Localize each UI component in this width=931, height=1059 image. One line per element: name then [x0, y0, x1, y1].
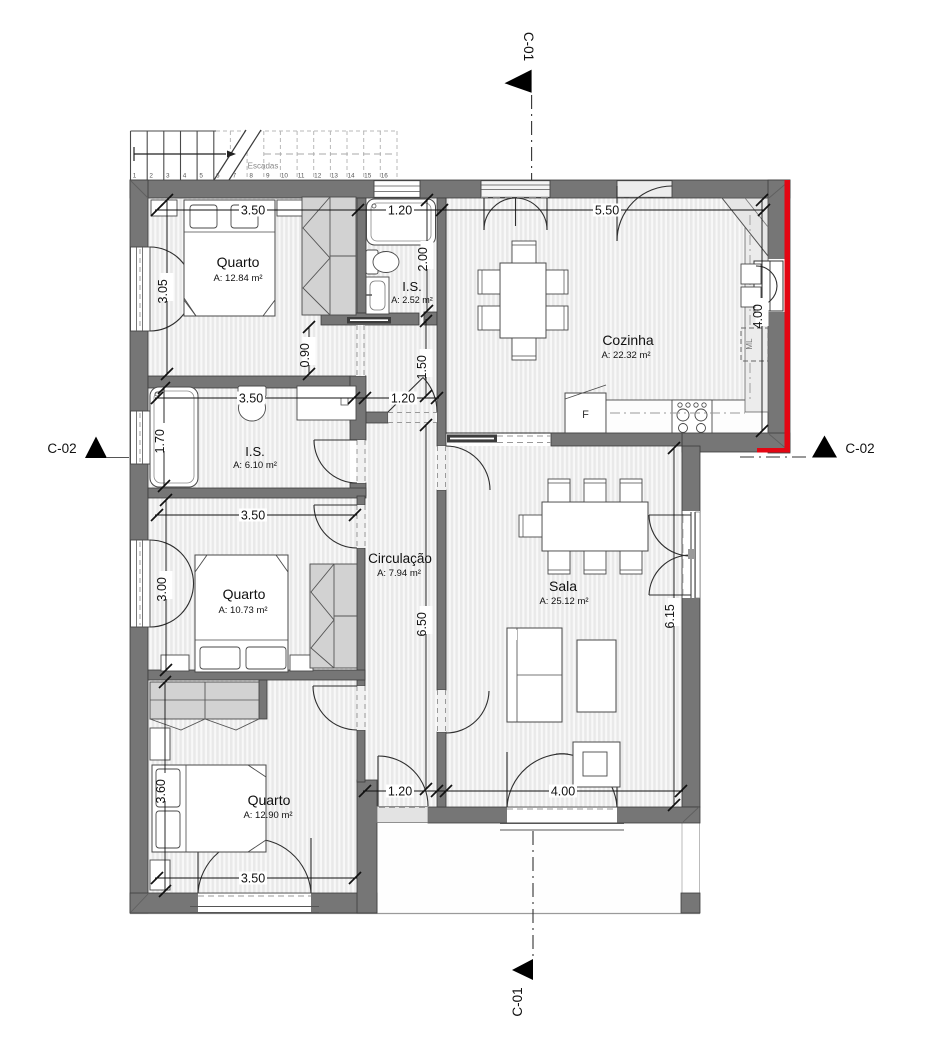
svg-text:1.20: 1.20: [388, 784, 412, 798]
svg-text:3.60: 3.60: [154, 779, 168, 803]
svg-text:A: 2.52 m²: A: 2.52 m²: [391, 295, 433, 305]
svg-text:7: 7: [233, 173, 237, 180]
svg-text:F: F: [582, 409, 589, 421]
svg-text:15: 15: [364, 173, 372, 180]
svg-text:C-01: C-01: [510, 987, 525, 1016]
svg-text:4: 4: [183, 173, 187, 180]
svg-text:4.00: 4.00: [551, 784, 575, 798]
svg-text:12: 12: [314, 173, 322, 180]
svg-text:3: 3: [166, 173, 170, 180]
svg-text:9: 9: [266, 173, 270, 180]
svg-text:3.00: 3.00: [155, 577, 169, 601]
svg-text:I.S.: I.S.: [245, 444, 265, 459]
svg-text:Quarto: Quarto: [217, 254, 260, 270]
svg-text:5.50: 5.50: [595, 203, 619, 217]
svg-text:6.15: 6.15: [663, 604, 677, 628]
svg-text:13: 13: [331, 173, 339, 180]
svg-text:2: 2: [149, 173, 153, 180]
svg-text:16: 16: [381, 173, 389, 180]
svg-text:1.20: 1.20: [391, 391, 415, 405]
svg-text:4.00: 4.00: [751, 304, 765, 328]
svg-text:1: 1: [133, 173, 137, 180]
svg-text:Escadas: Escadas: [248, 162, 279, 171]
svg-text:A: 7.94 m²: A: 7.94 m²: [377, 568, 421, 579]
svg-text:3.50: 3.50: [239, 391, 263, 405]
svg-text:3.50: 3.50: [241, 508, 265, 522]
svg-text:8: 8: [249, 173, 253, 180]
svg-text:10: 10: [281, 173, 289, 180]
svg-text:0.90: 0.90: [298, 343, 312, 367]
svg-text:5: 5: [199, 173, 203, 180]
svg-text:A: 22.32 m²: A: 22.32 m²: [601, 350, 650, 361]
svg-text:ML: ML: [745, 338, 754, 350]
svg-text:1.70: 1.70: [153, 429, 167, 453]
svg-text:C-02: C-02: [47, 441, 76, 456]
svg-text:Cozinha: Cozinha: [602, 332, 654, 348]
svg-text:1.50: 1.50: [415, 355, 429, 379]
svg-text:Quarto: Quarto: [248, 792, 291, 808]
svg-text:3.50: 3.50: [241, 203, 265, 217]
svg-text:6.50: 6.50: [415, 612, 429, 636]
svg-text:1.20: 1.20: [388, 203, 412, 217]
svg-text:C-02: C-02: [845, 441, 874, 456]
svg-text:C-01: C-01: [521, 32, 536, 61]
svg-text:3.50: 3.50: [241, 871, 265, 885]
svg-text:Sala: Sala: [549, 578, 577, 594]
svg-text:A: 12.84 m²: A: 12.84 m²: [213, 273, 262, 284]
svg-text:A: 10.73 m²: A: 10.73 m²: [218, 605, 267, 616]
svg-text:11: 11: [298, 173, 305, 180]
svg-text:I.S.: I.S.: [402, 279, 422, 294]
svg-text:14: 14: [347, 173, 355, 180]
svg-text:Quarto: Quarto: [223, 586, 266, 602]
svg-text:2.00: 2.00: [416, 247, 430, 271]
svg-text:3.05: 3.05: [156, 279, 170, 303]
svg-text:A: 12.90 m²: A: 12.90 m²: [243, 810, 292, 821]
svg-text:Circulação: Circulação: [368, 551, 432, 566]
svg-text:6: 6: [216, 173, 220, 180]
svg-text:A: 6.10 m²: A: 6.10 m²: [233, 460, 277, 471]
svg-text:A: 25.12 m²: A: 25.12 m²: [539, 596, 588, 607]
